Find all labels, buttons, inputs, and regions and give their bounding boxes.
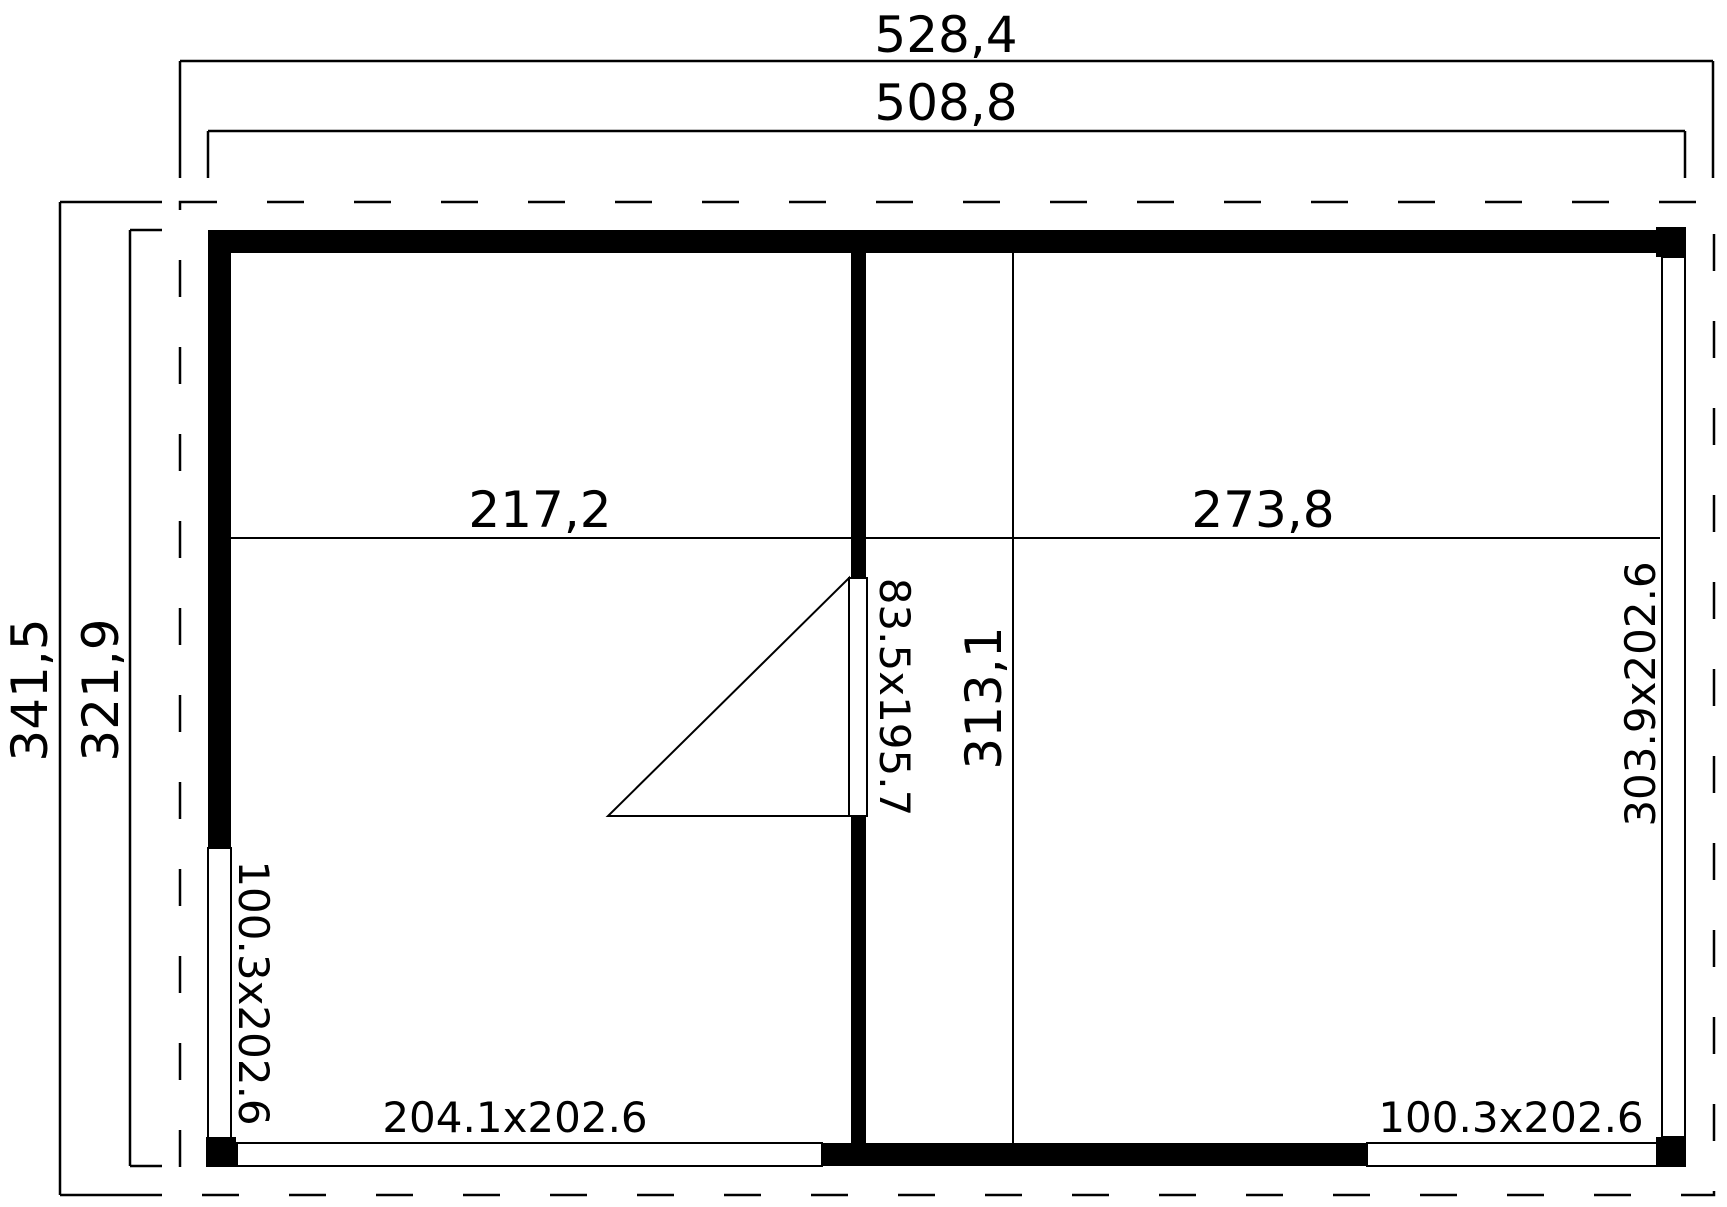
corner-post-top-right [1656,227,1686,257]
building-depth-dimension: 321,9 [72,230,162,1166]
bottom-right-window-size-label: 100.3x202.6 [1378,1093,1643,1142]
floorplan-page: 528,4 508,8 341,5 321,9 217,2 273,8 313,… [0,0,1727,1207]
right-room-width-label: 273,8 [1191,481,1334,539]
left-wall [208,230,231,848]
bottom-left-window-size-label: 204.1x202.6 [382,1093,647,1142]
door-leaf [849,578,867,816]
corner-post-bottom-left [206,1137,236,1167]
door-size-label: 83.5x195.7 [870,578,919,817]
door-swing [608,578,849,816]
left-window-size-label: 100.3x202.6 [229,860,278,1125]
bottom-left-window [237,1143,822,1166]
roof-overhang-outline [180,202,1714,1195]
left-window [208,848,231,1138]
right-window [1662,257,1685,1137]
corner-post-bottom-right [1656,1137,1686,1167]
building-width-dimension: 508,8 [208,74,1685,178]
right-window-size-label: 303.9x202.6 [1616,561,1665,826]
interior-depth-label: 313,1 [955,626,1013,769]
top-wall [208,230,1685,253]
left-room-width-label: 217,2 [468,481,611,539]
roof-width-label: 528,4 [874,6,1017,64]
floorplan-canvas: 528,4 508,8 341,5 321,9 217,2 273,8 313,… [0,0,1727,1207]
building-width-label: 508,8 [874,74,1017,132]
building-depth-label: 321,9 [72,618,130,761]
roof-depth-label: 341,5 [1,618,59,761]
bottom-right-window [1367,1143,1660,1166]
